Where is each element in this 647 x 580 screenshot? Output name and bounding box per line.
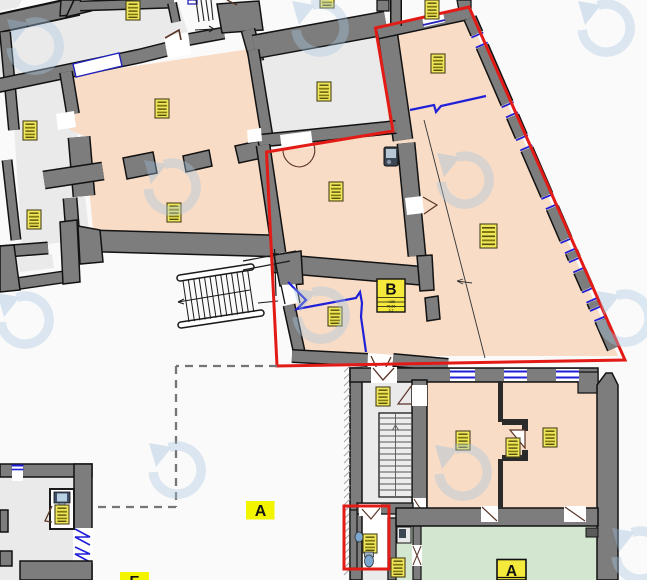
svg-text:A: A [506,563,517,580]
svg-text:E: E [129,573,139,580]
svg-text:A: A [255,503,267,520]
svg-text:B: B [385,282,396,299]
svg-text:3,2: 3,2 [389,308,394,312]
